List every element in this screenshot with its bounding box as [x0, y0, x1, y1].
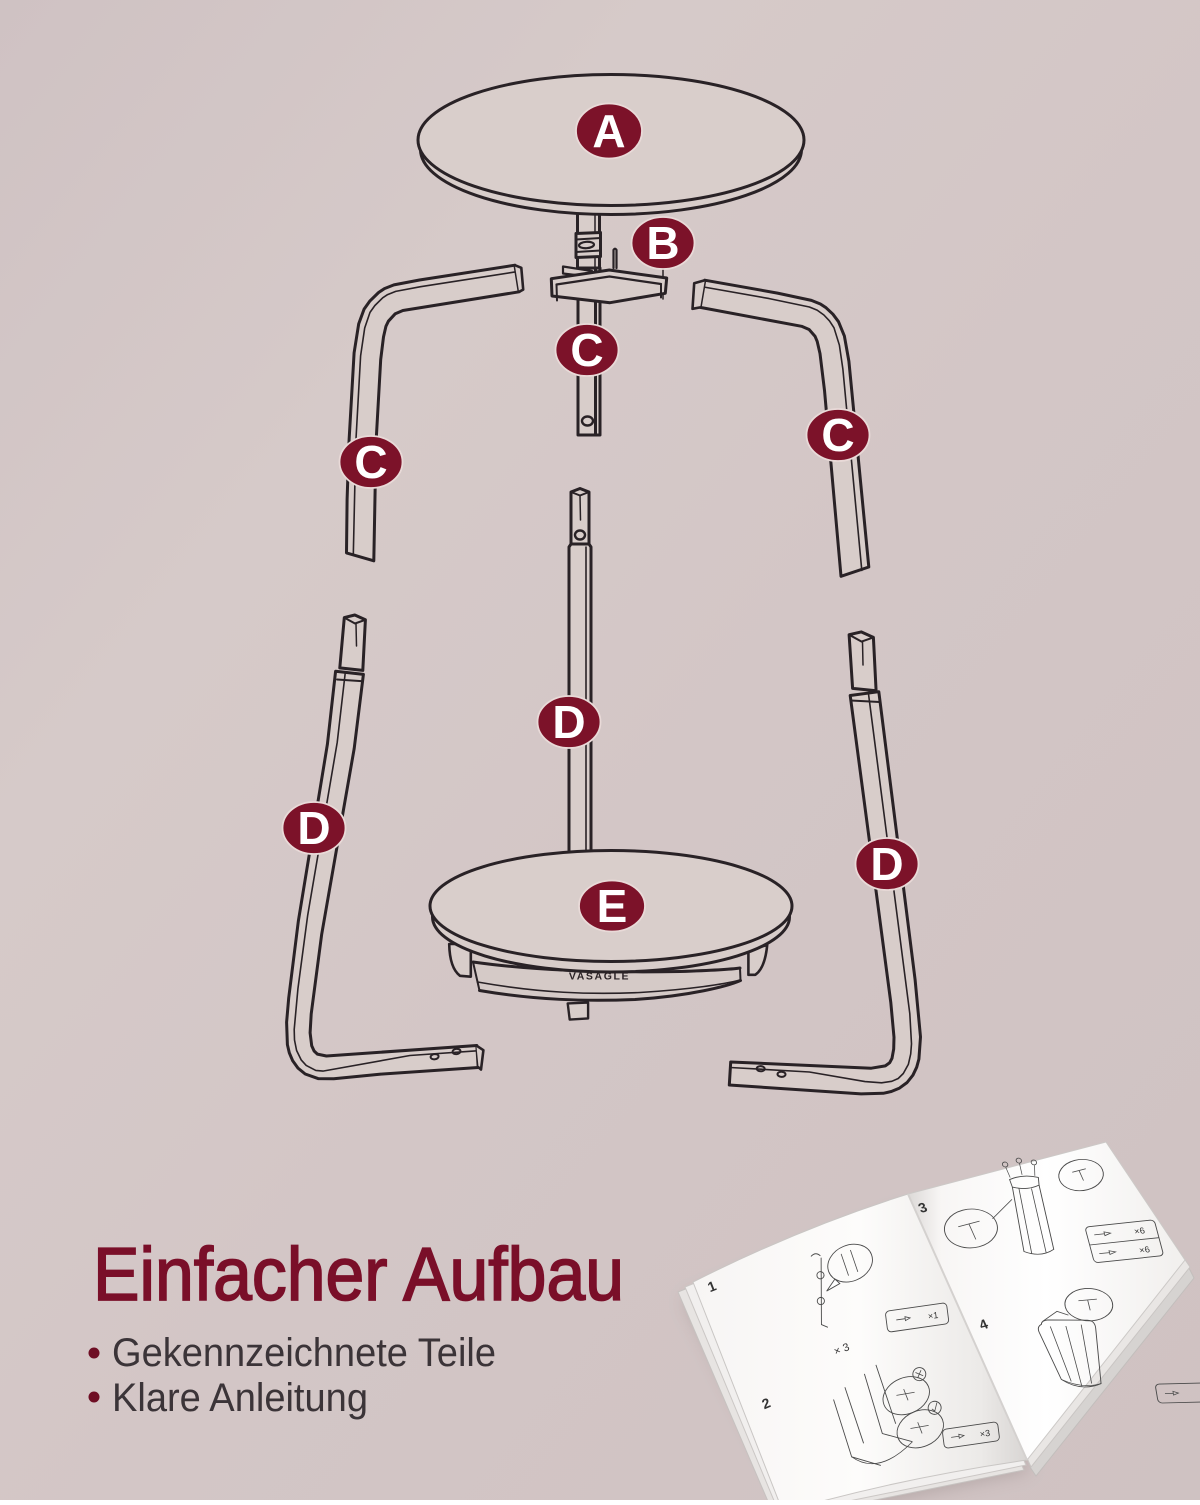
- svg-text:Gekennzeichnete Teile: Gekennzeichnete Teile: [112, 1331, 496, 1375]
- svg-text:×3: ×3: [979, 1428, 990, 1439]
- svg-text:D: D: [552, 696, 585, 748]
- svg-text:Klare Anleitung: Klare Anleitung: [112, 1376, 368, 1420]
- svg-text:C: C: [570, 324, 603, 376]
- svg-text:C: C: [821, 409, 854, 461]
- svg-text:A: A: [592, 105, 625, 157]
- svg-text:×1: ×1: [927, 1310, 938, 1321]
- svg-text:VASAGLE: VASAGLE: [569, 971, 630, 983]
- svg-text:D: D: [297, 802, 330, 854]
- svg-text:E: E: [597, 880, 628, 932]
- svg-text:B: B: [646, 217, 679, 269]
- svg-text:D: D: [870, 838, 903, 890]
- svg-text:Einfacher Aufbau: Einfacher Aufbau: [93, 1232, 624, 1316]
- svg-text:C: C: [354, 436, 387, 488]
